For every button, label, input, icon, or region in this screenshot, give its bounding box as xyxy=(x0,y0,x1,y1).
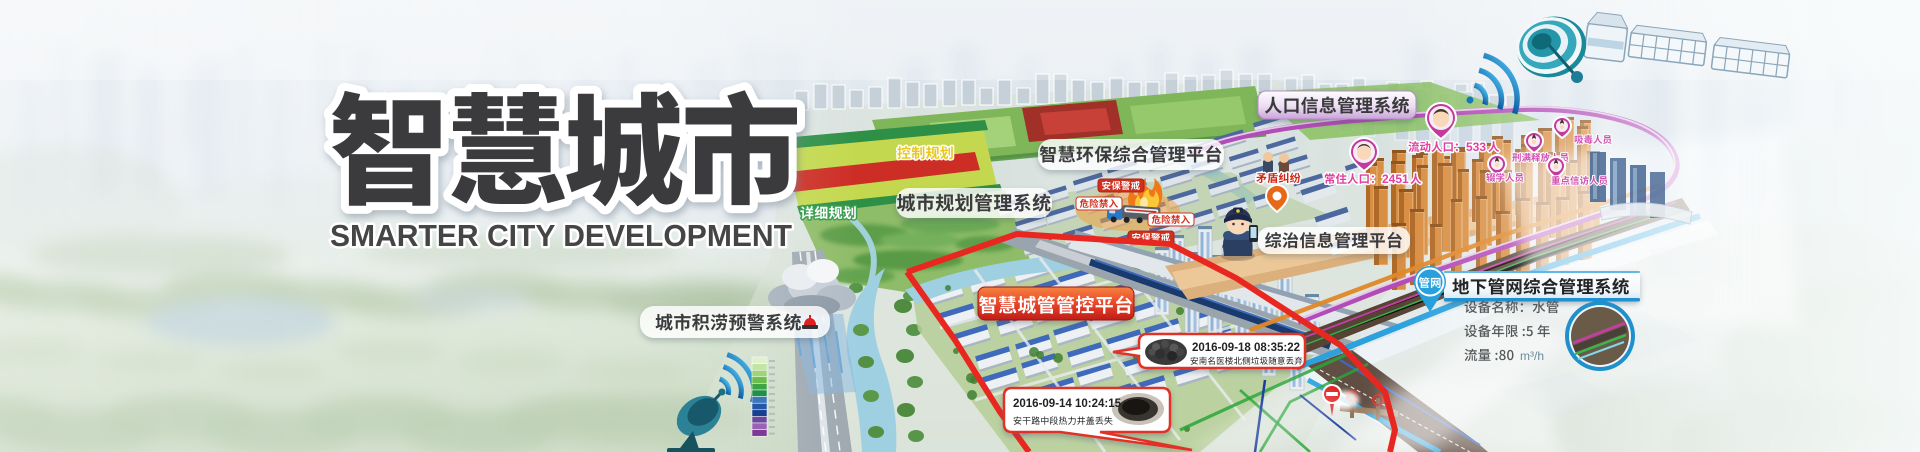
svg-text:m³/h: m³/h xyxy=(1520,349,1544,363)
svg-text:533: 533 xyxy=(1466,140,1486,154)
svg-text:2451: 2451 xyxy=(1382,172,1409,186)
svg-text:SMARTER CITY DEVELOPMENT: SMARTER CITY DEVELOPMENT xyxy=(330,218,792,253)
svg-text:2016-09-18 08:35:22: 2016-09-18 08:35:22 xyxy=(1192,342,1300,354)
svg-text:2016-09-14 10:24:15: 2016-09-14 10:24:15 xyxy=(1013,398,1122,410)
